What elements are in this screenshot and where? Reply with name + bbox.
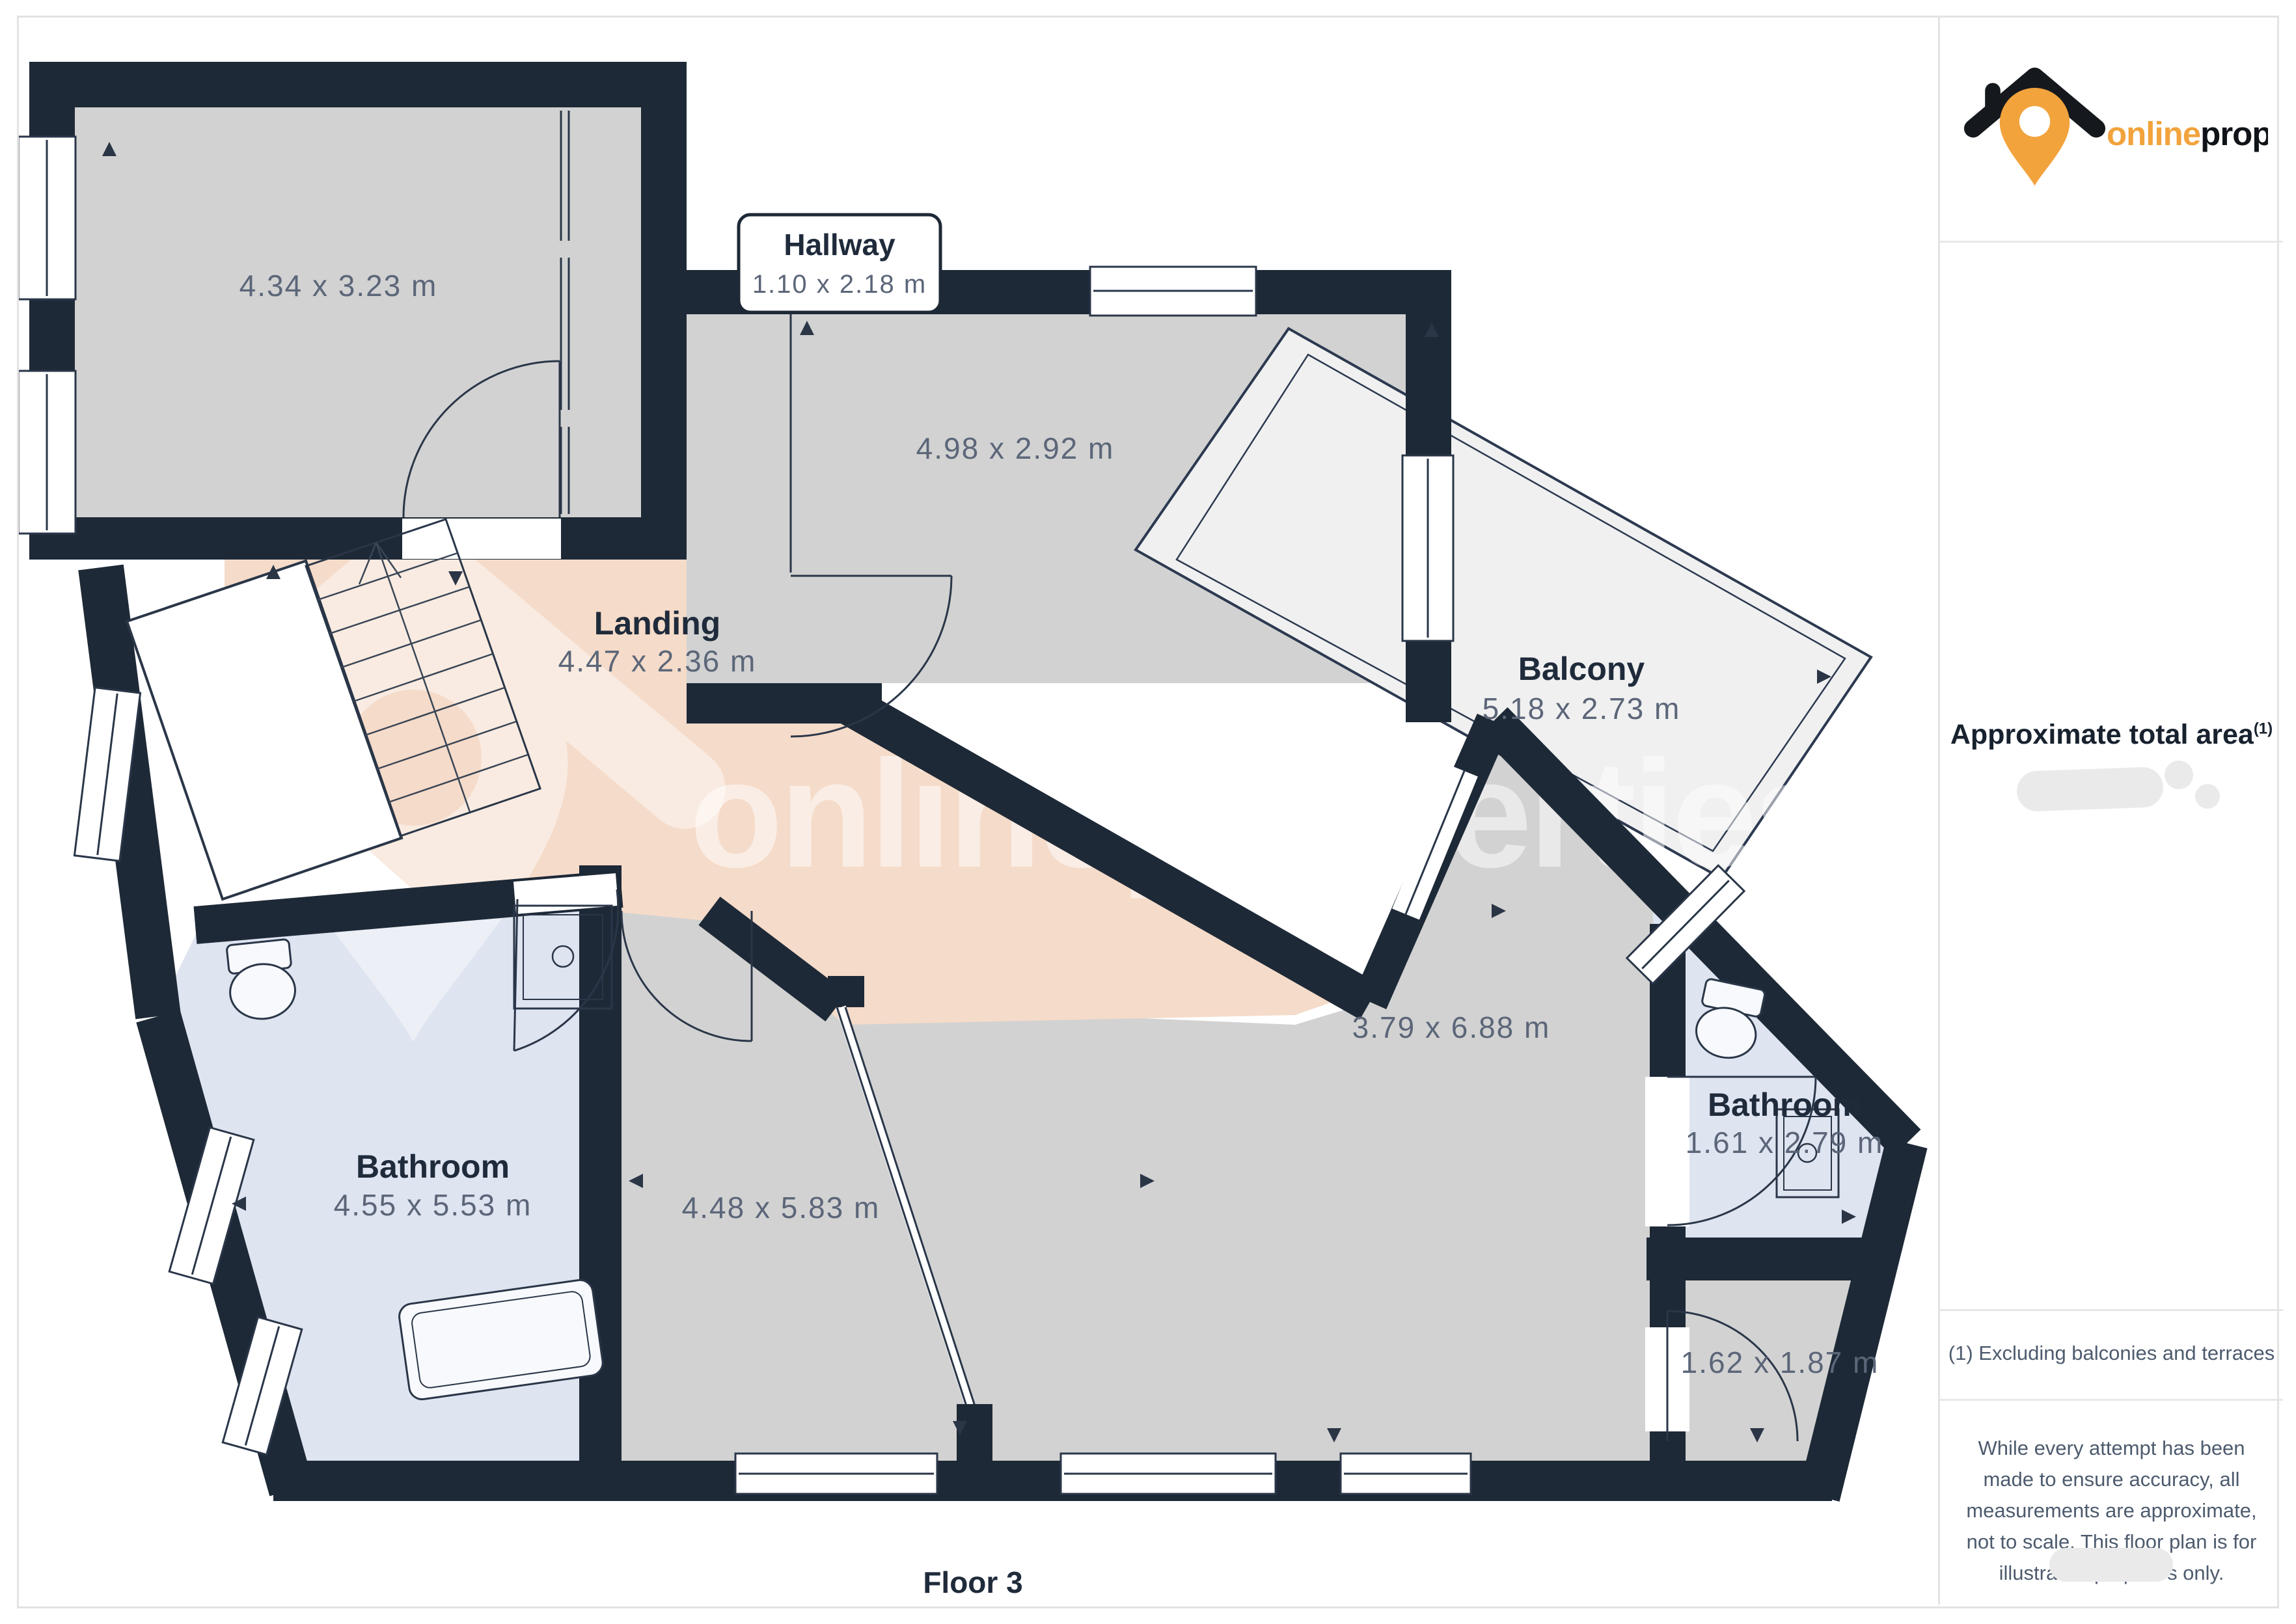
hallway-dims: 1.10 x 2.18 m bbox=[752, 270, 927, 299]
balcony-name: Balcony bbox=[1518, 651, 1645, 687]
redacted-date bbox=[2049, 1548, 2173, 1582]
hallway-label-box: Hallway 1.10 x 2.18 m bbox=[739, 215, 940, 312]
footnote-marker: (1) bbox=[2254, 720, 2273, 738]
window bbox=[735, 1454, 937, 1494]
floor-label: Floor 3 bbox=[875, 1565, 1071, 1600]
room-bottom-right-dims: 3.79 x 6.88 m bbox=[1352, 1010, 1551, 1044]
brand-logo: onlineproperties bbox=[1940, 41, 2283, 220]
logo-text-primary: online bbox=[2107, 115, 2200, 152]
storage-room-dims: 1.62 x 1.87 m bbox=[1681, 1346, 1879, 1379]
floor-plan-drawing: onlineproperties bbox=[0, 0, 1936, 1624]
sidebar-divider bbox=[1940, 241, 2283, 243]
hallway-name: Hallway bbox=[784, 228, 895, 262]
sidebar-divider bbox=[1940, 1399, 2283, 1401]
bathroom-large-name: Bathroom bbox=[356, 1148, 510, 1185]
window bbox=[1090, 267, 1256, 316]
bathroom-small-name: Bathroom bbox=[1708, 1087, 1861, 1123]
redaction-dot bbox=[2195, 784, 2220, 809]
redaction-dot bbox=[2165, 761, 2193, 789]
total-area-heading: Approximate total area(1) bbox=[1940, 719, 2283, 751]
window bbox=[18, 137, 75, 299]
window bbox=[1341, 1454, 1471, 1494]
bathroom-large-dims: 4.55 x 5.53 m bbox=[334, 1188, 532, 1222]
bedroom-top-left-dims: 4.34 x 3.23 m bbox=[239, 269, 438, 303]
window bbox=[18, 371, 75, 534]
balcony-dims: 5.18 x 2.73 m bbox=[1483, 692, 1681, 725]
logo-text-secondary: properties bbox=[2200, 115, 2268, 152]
window bbox=[1402, 455, 1453, 641]
redaction-blob bbox=[2016, 766, 2164, 812]
room-top-middle-dims: 4.98 x 2.92 m bbox=[916, 431, 1115, 465]
window bbox=[1061, 1454, 1276, 1494]
landing-dims: 4.47 x 2.36 m bbox=[558, 644, 757, 678]
brand-logo-svg: onlineproperties bbox=[1956, 41, 2268, 217]
info-sidebar: onlineproperties Approximate total area(… bbox=[1938, 18, 2283, 1604]
room-bottom-middle-dims: 4.48 x 5.83 m bbox=[682, 1191, 881, 1225]
landing-name: Landing bbox=[594, 605, 720, 642]
house-pin-icon bbox=[1973, 77, 2096, 186]
floorplan-page: onlineproperties bbox=[0, 0, 2296, 1624]
total-area-heading-text: Approximate total area bbox=[1950, 719, 2254, 750]
svg-text:onlineproperties: onlineproperties bbox=[2107, 115, 2268, 152]
area-footnote: (1) Excluding balconies and terraces bbox=[1940, 1342, 2283, 1365]
sidebar-divider bbox=[1940, 1309, 2283, 1311]
bathroom-small-dims: 1.61 x 2.79 m bbox=[1686, 1126, 1884, 1159]
bedroom-top-left-floor bbox=[75, 107, 641, 517]
